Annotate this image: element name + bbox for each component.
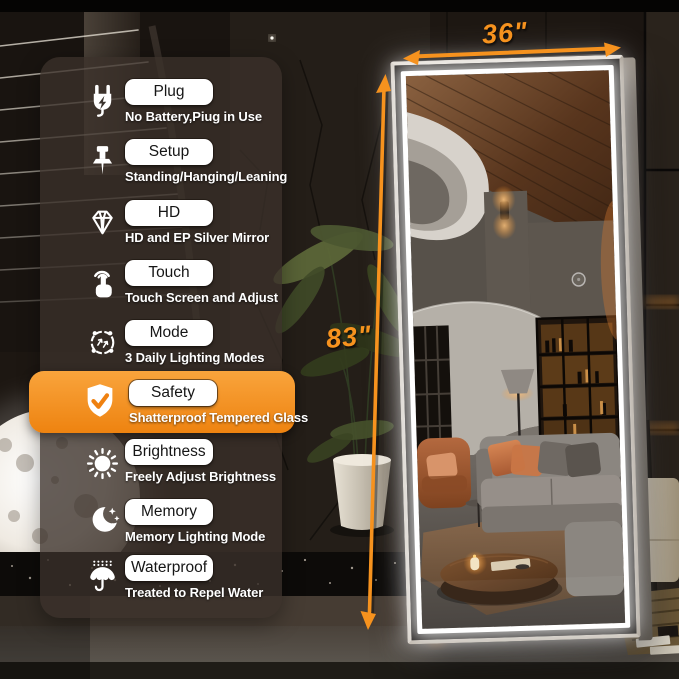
shield-check-icon	[77, 380, 123, 424]
feature-description: Freely Adjust Brightness	[125, 469, 276, 484]
feature-mode: Mode3 Daily Lighting Modes	[40, 320, 282, 365]
feature-hd: HDHD and EP Silver Mirror	[40, 200, 282, 245]
feature-label-button: Touch	[125, 260, 213, 286]
feature-waterproof: WaterproofTreated to Repel Water	[40, 555, 282, 600]
moon-stars-icon	[82, 499, 122, 543]
feature-description: HD and EP Silver Mirror	[125, 230, 269, 245]
feature-description: 3 Daily Lighting Modes	[125, 350, 264, 365]
feature-label-button: Setup	[125, 139, 213, 165]
feature-label-button: Waterproof	[125, 555, 213, 581]
width-dimension-label: 36"	[481, 16, 529, 50]
mirror-reflection-scene	[406, 70, 625, 629]
led-full-length-mirror	[390, 55, 640, 645]
features-panel: PlugNo Battery,Piug in Use SetupStanding…	[40, 57, 282, 618]
feature-label-button: Safety	[129, 380, 217, 406]
touch-sensor	[572, 273, 585, 286]
touch-icon	[82, 260, 122, 304]
feature-description: Touch Screen and Adjust	[125, 290, 278, 305]
feature-memory: MemoryMemory Lighting Mode	[40, 499, 282, 544]
umbrella-rain-icon	[82, 555, 122, 599]
feature-label-button: Brightness	[125, 439, 213, 465]
feature-description: Shatterproof Tempered Glass	[129, 410, 308, 425]
bar-shelf	[537, 316, 620, 451]
feature-setup: SetupStanding/Hanging/Leaning	[40, 139, 282, 184]
feature-description: Standing/Hanging/Leaning	[125, 169, 287, 184]
feature-brightness: BrightnessFreely Adjust Brightness	[40, 439, 282, 484]
product-image: PlugNo Battery,Piug in Use SetupStanding…	[0, 0, 679, 679]
feature-label-button: Plug	[125, 79, 213, 105]
feature-description: Treated to Repel Water	[125, 585, 263, 600]
lighting-mode-icon	[82, 320, 122, 364]
feature-description: Memory Lighting Mode	[125, 529, 265, 544]
plug-icon	[82, 79, 122, 123]
feature-label-button: Mode	[125, 320, 213, 346]
diamond-icon	[82, 200, 122, 244]
feature-plug: PlugNo Battery,Piug in Use	[40, 79, 282, 124]
sun-icon	[82, 439, 122, 483]
feature-label-button: HD	[125, 200, 213, 226]
pushpin-icon	[82, 139, 122, 183]
feature-safety-highlight: SafetyShatterproof Tempered Glass	[29, 371, 295, 433]
feature-label-button: Memory	[125, 499, 213, 525]
feature-touch: TouchTouch Screen and Adjust	[40, 260, 282, 305]
feature-description: No Battery,Piug in Use	[125, 109, 262, 124]
led-border	[401, 65, 631, 634]
height-dimension-label: 83"	[325, 320, 373, 355]
